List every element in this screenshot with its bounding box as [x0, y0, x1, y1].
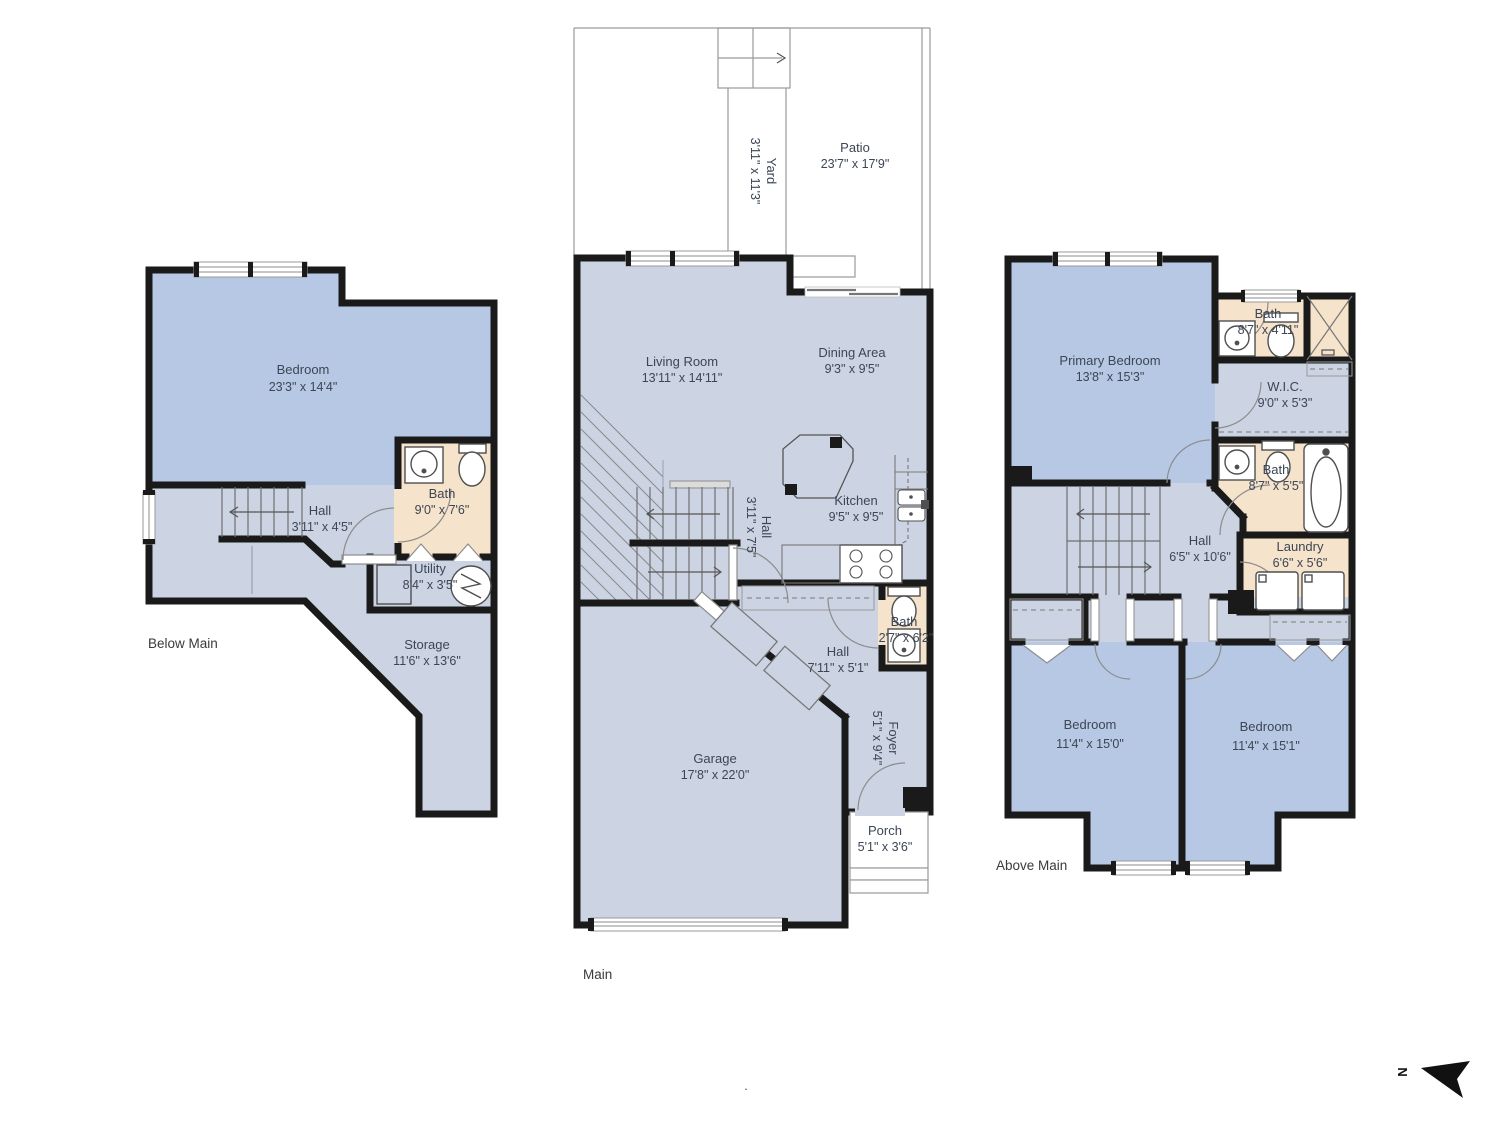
- room-dims-bath2: 8'7" x 5'5": [1249, 479, 1304, 493]
- above-bedleft-floor: [1008, 642, 1180, 868]
- room-dims-porch: 5'1" x 3'6": [858, 840, 913, 854]
- room-label-kitchen: Kitchen: [834, 493, 877, 508]
- room-dims-primary: 13'8" x 15'3": [1076, 370, 1145, 384]
- room-label-bedleft: Bedroom: [1064, 717, 1117, 732]
- room-label-garage: Garage: [693, 751, 736, 766]
- room-label-bath-main: Bath: [891, 614, 918, 629]
- room-dims-bedright: 11'4" x 15'1": [1232, 739, 1300, 753]
- room-dims-bedleft: 11'4" x 15'0": [1056, 737, 1124, 751]
- main-sliding-door: [805, 287, 900, 297]
- room-dims-hall-lower: 7'11" x 5'1": [808, 661, 869, 675]
- room-dims-kitchen: 9'5" x 9'5": [829, 510, 884, 524]
- room-label-storage: Storage: [404, 637, 450, 652]
- room-label-bath2: Bath: [1263, 462, 1290, 477]
- room-label-hall-upper: Hall: [759, 516, 774, 539]
- below-top-window: [194, 262, 307, 277]
- floorplan-above-main: Primary Bedroom 13'8" x 15'3" Bath 8'7" …: [996, 252, 1352, 875]
- below-left-window: [143, 490, 155, 544]
- north-arrow-icon: [1421, 1061, 1470, 1098]
- room-label-foyer: Foyer: [886, 721, 901, 755]
- room-label-hall-lower: Hall: [827, 644, 850, 659]
- north-compass: N: [1395, 1061, 1470, 1098]
- room-label-dining: Dining Area: [818, 345, 886, 360]
- room-label-hall: Hall: [309, 503, 332, 518]
- room-dims-bedroom: 23'3" x 14'4": [269, 380, 338, 394]
- below-bath-sink: [405, 447, 443, 483]
- room-label-bath: Bath: [429, 486, 456, 501]
- floor-label-below-main: Below Main: [148, 636, 218, 651]
- above-wall-chunk-laundry: [1228, 590, 1254, 614]
- main-top-window: [626, 251, 739, 266]
- kitchen-stove: [840, 545, 902, 583]
- room-dims-wic: 9'0" x 5'3": [1258, 396, 1313, 410]
- floorplan-below-main: Bedroom 23'3" x 14'4" Bath 9'0" x 7'6" H…: [143, 262, 494, 814]
- floor-label-above-main: Above Main: [996, 858, 1067, 873]
- below-toilet: [459, 444, 486, 486]
- room-label-porch: Porch: [868, 823, 902, 838]
- floorplan-main: Living Room 13'11" x 14'11" Dining Area …: [574, 28, 933, 1093]
- room-label-bedright: Bedroom: [1240, 719, 1293, 734]
- room-label-primary: Primary Bedroom: [1059, 353, 1160, 368]
- room-dims-bath-main: 2'7" x 6'2": [879, 631, 934, 645]
- above-bedright-window: [1185, 861, 1250, 875]
- room-dims-garage: 17'8" x 22'0": [681, 768, 750, 782]
- above-bedleft-window: [1111, 861, 1176, 875]
- above-wall-chunk-primary: [1005, 466, 1032, 486]
- room-label-patio: Patio: [840, 140, 870, 155]
- room-dims-hall-upper: 3'11" x 7'5": [744, 497, 758, 558]
- room-label-laundry: Laundry: [1277, 539, 1324, 554]
- room-label-yard: Yard: [764, 158, 779, 185]
- room-dims-patio: 23'7" x 17'9": [821, 157, 890, 171]
- room-dims-laundry: 6'6" x 5'6": [1273, 556, 1328, 570]
- room-dims-hall: 3'11" x 4'5": [292, 520, 353, 534]
- room-label-living: Living Room: [646, 354, 718, 369]
- above-top-window: [1053, 252, 1162, 266]
- room-dims-storage: 11'6" x 13'6": [393, 654, 461, 668]
- room-label-bedroom: Bedroom: [277, 362, 330, 377]
- main-garage-door: [588, 918, 788, 931]
- room-dims-utility: 8'4" x 3'5": [403, 578, 458, 592]
- room-dims-hall-above: 6'5" x 10'6": [1169, 550, 1231, 564]
- room-label-wic: W.I.C.: [1267, 379, 1302, 394]
- room-label-bath1: Bath: [1255, 306, 1282, 321]
- room-label-hall-above: Hall: [1189, 533, 1212, 548]
- room-dims-bath: 9'0" x 7'6": [415, 503, 470, 517]
- footnote-dot: .: [744, 1079, 747, 1093]
- room-dims-dining: 9'3" x 9'5": [825, 362, 880, 376]
- main-front-opening: [855, 808, 905, 816]
- above-bedright-floor: [1184, 642, 1352, 868]
- north-label: N: [1395, 1067, 1410, 1076]
- above-bath1-window: [1241, 290, 1301, 302]
- floorplan-image: Bedroom 23'3" x 14'4" Bath 9'0" x 7'6" H…: [0, 0, 1500, 1125]
- room-dims-living: 13'11" x 14'11": [642, 371, 723, 385]
- room-dims-yard: 3'11" x 11'3": [748, 138, 762, 205]
- room-dims-bath1: 8'7" x 4'11": [1238, 323, 1299, 337]
- room-label-utility: Utility: [414, 561, 446, 576]
- floorplan-page: Bedroom 23'3" x 14'4" Bath 9'0" x 7'6" H…: [0, 0, 1500, 1125]
- main-wall-chunk: [903, 787, 928, 812]
- room-dims-foyer: 5'1" x 9'4": [870, 711, 884, 766]
- floor-label-main: Main: [583, 967, 612, 982]
